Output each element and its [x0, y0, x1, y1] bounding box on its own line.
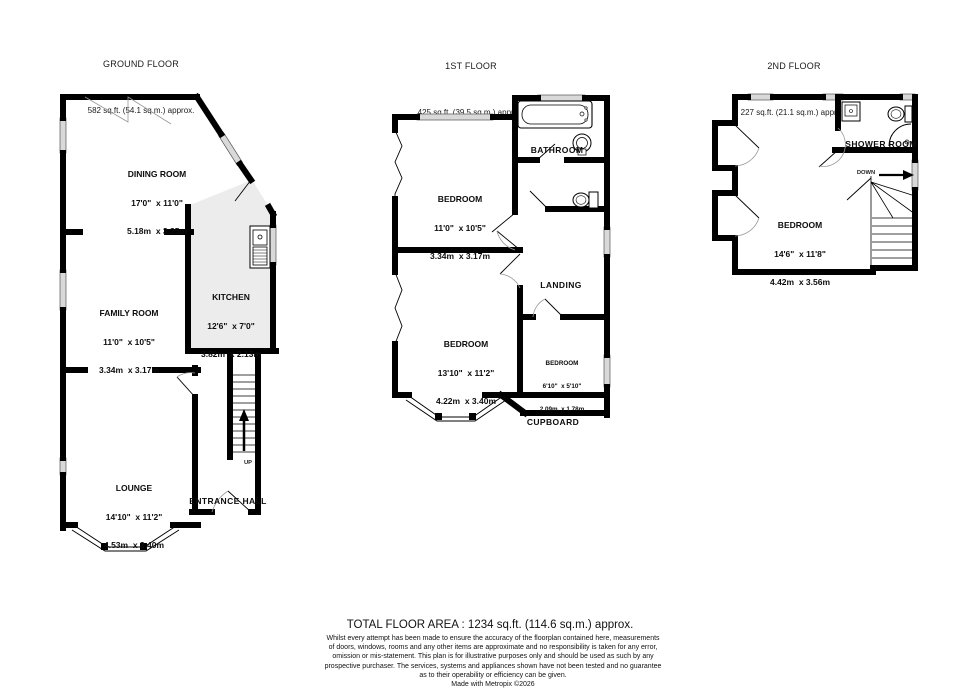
room-dim-imperial: 14'10" x 11'2": [104, 513, 164, 523]
room-dim-metric: 4.42m x 3.56m: [770, 278, 830, 288]
room-dim-metric: 3.82m x 2.13m: [201, 350, 261, 360]
room-dim-imperial: 13'10" x 11'2": [436, 369, 496, 379]
room-label-bedroom1: BEDROOM 11'0" x 10'5" 3.34m x 3.17m: [430, 176, 490, 271]
bathtub: [518, 101, 592, 128]
room-name: LANDING: [540, 281, 582, 291]
room-name: BEDROOM: [540, 360, 584, 368]
room-dim-metric: 5.18m x 3.35m: [127, 227, 187, 237]
room-label-bedroom2: BEDROOM 13'10" x 11'2" 4.22m x 3.40m: [436, 321, 496, 416]
toilet: [573, 192, 598, 208]
disclaimer-line: as to their operability or efficiency ca…: [325, 671, 662, 680]
room-label-kitchen: KITCHEN 12'6" x 7'0" 3.82m x 2.13m: [201, 274, 261, 369]
up-arrow-head: [239, 409, 249, 421]
toilet: [888, 106, 912, 122]
disclaimer-line: Whilst every attempt has been made to en…: [325, 634, 662, 643]
room-name: CUPBOARD: [527, 418, 579, 428]
credit-line: Made with Metropix ©2026: [325, 680, 662, 689]
room-label-cupboard: CUPBOARD: [527, 399, 579, 437]
room-name: BEDROOM: [770, 221, 830, 231]
room-label-family: FAMILY ROOM 11'0" x 10'5" 3.34m x 3.17m: [99, 290, 159, 385]
floor-title: GROUND FLOOR: [88, 59, 195, 69]
disclaimer: Whilst every attempt has been made to en…: [325, 634, 662, 689]
room-label-dining: DINING ROOM 17'0" x 11'0" 5.18m x 3.35m: [127, 151, 187, 246]
room-label-lounge: LOUNGE 14'10" x 11'2" 4.53m x 3.40m: [104, 465, 164, 560]
floorplan-page: { "floors": { "ground": { "title": "GROU…: [0, 0, 980, 684]
floor-title: 1ST FLOOR: [418, 61, 525, 71]
room-dim-imperial: 17'0" x 11'0": [127, 199, 187, 209]
up-label: UP: [244, 460, 252, 466]
stairs-down: [871, 176, 915, 268]
room-label-bathroom: BATHROOM: [531, 127, 584, 165]
room-name: ENTRANCE HALL: [189, 497, 266, 507]
room-label-entrance-hall: ENTRANCE HALL: [189, 478, 266, 516]
shower-sink: [842, 102, 860, 121]
room-dim-metric: 3.34m x 3.17m: [430, 252, 490, 262]
room-name: BATHROOM: [531, 146, 584, 156]
down-label: DOWN: [857, 170, 875, 176]
room-dim-imperial: 12'6" x 7'0": [201, 322, 261, 332]
room-label-shower-room: SHOWER ROOM: [845, 121, 916, 159]
room-name: BEDROOM: [430, 195, 490, 205]
disclaimer-line: prospective purchaser. The services, sys…: [325, 662, 662, 671]
room-label-landing: LANDING: [540, 262, 582, 300]
total-floor-area: TOTAL FLOOR AREA : 1234 sq.ft. (114.6 sq…: [347, 619, 634, 631]
room-dim-metric: 3.34m x 3.17m: [99, 366, 159, 376]
disclaimer-line: omission or mis-statement. This plan is …: [325, 652, 662, 661]
room-name: LOUNGE: [104, 484, 164, 494]
room-dim-metric: 4.22m x 3.40m: [436, 397, 496, 407]
floor-title: 2ND FLOOR: [741, 61, 848, 71]
sink-unit: [250, 226, 270, 268]
room-dim-imperial: 11'0" x 10'5": [99, 338, 159, 348]
room-name: KITCHEN: [201, 293, 261, 303]
room-name: DINING ROOM: [127, 170, 187, 180]
room-dim-imperial: 6'10" x 5'10": [540, 383, 584, 391]
room-name: SHOWER ROOM: [845, 140, 916, 150]
room-dim-metric: 4.53m x 3.40m: [104, 541, 164, 551]
room-dim-imperial: 14'6" x 11'8": [770, 250, 830, 260]
disclaimer-line: of doors, windows, rooms and any other i…: [325, 643, 662, 652]
room-name: FAMILY ROOM: [99, 309, 159, 319]
room-label-bedroom-2nd: BEDROOM 14'6" x 11'8" 4.42m x 3.56m: [770, 202, 830, 297]
room-dim-imperial: 11'0" x 10'5": [430, 224, 490, 234]
ceiling-line: [85, 97, 171, 124]
room-name: BEDROOM: [436, 340, 496, 350]
